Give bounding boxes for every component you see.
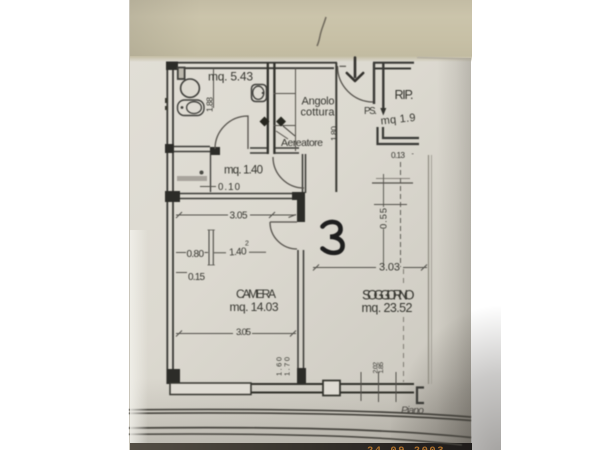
svg-text:mq. 5.43: mq. 5.43 (208, 70, 253, 84)
svg-text:3.05: 3.05 (236, 327, 251, 338)
svg-text:2: 2 (245, 241, 249, 248)
svg-text:1.40: 1.40 (229, 246, 248, 258)
svg-text:mq. 14.03: mq. 14.03 (230, 300, 279, 314)
svg-text:0.80: 0.80 (187, 249, 205, 260)
svg-text:0.13: 0.13 (391, 150, 405, 160)
svg-text:1.85: 1.85 (378, 362, 385, 374)
svg-text:RIP.: RIP. (395, 88, 414, 102)
svg-text:0.15: 0.15 (188, 272, 205, 283)
svg-text:1.70: 1.70 (283, 357, 292, 376)
svg-text:0.10: 0.10 (218, 182, 241, 193)
svg-text:1.88: 1.88 (205, 97, 215, 112)
svg-text:mq 1.9: mq 1.9 (380, 112, 416, 128)
svg-text:Piano: Piano (401, 405, 424, 417)
svg-text:0.55: 0.55 (379, 208, 390, 229)
svg-text:-: - (412, 151, 415, 158)
svg-text:mq. 23.52: mq. 23.52 (362, 301, 413, 315)
svg-text:3.05: 3.05 (230, 211, 248, 222)
svg-text:3.03: 3.03 (379, 262, 400, 274)
svg-text:PS.: PS. (364, 106, 377, 117)
svg-text:1.80: 1.80 (329, 126, 339, 141)
svg-text:Aereatore: Aereatore (281, 137, 323, 149)
svg-text:mq. 1.40: mq. 1.40 (224, 165, 263, 177)
svg-text:cottura: cottura (301, 107, 336, 119)
